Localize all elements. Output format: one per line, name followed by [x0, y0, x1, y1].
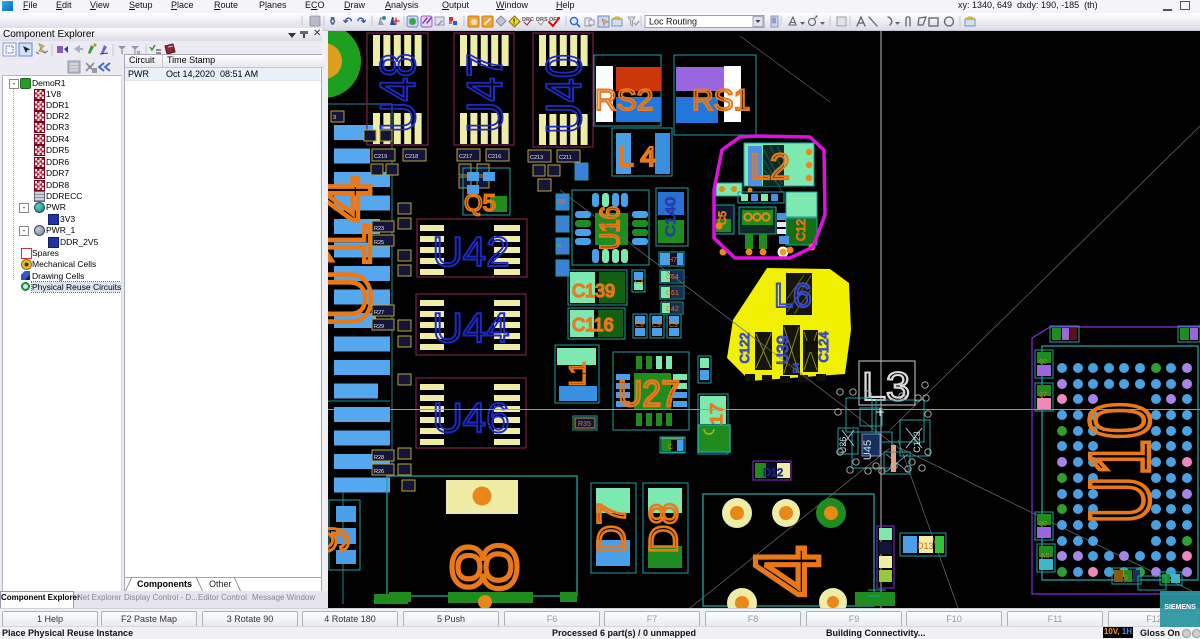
svg-text:C116: C116: [572, 315, 614, 335]
svg-text:D8: D8: [642, 502, 686, 553]
svg-text:R23: R23: [374, 226, 384, 232]
svg-text:4: 4: [737, 545, 839, 596]
svg-text:27: 27: [1039, 392, 1047, 399]
svg-text:9: 9: [328, 526, 359, 554]
svg-text:C219: C219: [374, 154, 387, 160]
svg-text:R35: R35: [578, 421, 591, 428]
svg-text:8: 8: [434, 541, 536, 592]
svg-text:D13: D13: [917, 541, 934, 551]
svg-text:U46: U46: [432, 394, 509, 441]
svg-text:8: 8: [1063, 333, 1067, 340]
svg-text:↶: ↶: [342, 16, 353, 28]
svg-text:C124: C124: [816, 331, 831, 362]
svg-text:R25: R25: [374, 240, 384, 246]
svg-text:C61: C61: [666, 290, 679, 297]
svg-text:RS2: RS2: [595, 84, 653, 117]
svg-text:U27: U27: [618, 373, 680, 414]
svg-text:C216: C216: [488, 154, 501, 160]
svg-text:C218: C218: [405, 154, 418, 160]
svg-text:R6: R6: [557, 199, 566, 206]
svg-text:U40: U40: [536, 54, 592, 134]
svg-text:R28: R28: [374, 455, 384, 461]
svg-text:C217: C217: [459, 154, 472, 160]
svg-text:K0: K0: [1041, 553, 1050, 560]
svg-text:C9: C9: [652, 322, 661, 329]
svg-text:Loc Routing: Loc Routing: [649, 17, 697, 27]
svg-text:L3: L3: [862, 365, 910, 409]
svg-text:C140: C140: [662, 197, 678, 237]
svg-text:80: 80: [1039, 359, 1047, 366]
svg-text:C: C: [668, 444, 673, 451]
svg-text:U47: U47: [457, 53, 513, 133]
svg-text:D7: D7: [590, 502, 634, 553]
svg-text:H7: H7: [668, 257, 677, 264]
svg-text:K: K: [557, 243, 562, 250]
svg-text:C213: C213: [530, 155, 543, 161]
svg-text:⚱: ⚱: [328, 16, 337, 28]
svg-text:C9: C9: [669, 322, 678, 329]
svg-text:C9: C9: [635, 322, 644, 329]
svg-text:↷: ↷: [357, 16, 367, 28]
svg-text:U44: U44: [432, 304, 509, 351]
svg-text:R26: R26: [374, 469, 384, 475]
svg-text:U10: U10: [1073, 402, 1168, 524]
svg-text:R27: R27: [374, 310, 384, 316]
svg-text:!: !: [513, 18, 516, 27]
svg-text:80: 80: [1039, 521, 1047, 528]
svg-text:L6: L6: [774, 277, 812, 315]
svg-text:C139: C139: [572, 281, 615, 301]
svg-text:L1: L1: [565, 362, 590, 386]
svg-text:3: 3: [333, 115, 336, 121]
svg-text:R29: R29: [374, 324, 384, 330]
svg-text:L 4: L 4: [618, 141, 656, 172]
svg-text:C12: C12: [794, 219, 808, 241]
svg-text:U48: U48: [370, 53, 426, 133]
svg-text:U26: U26: [838, 437, 848, 454]
svg-text:C4: C4: [635, 279, 644, 286]
svg-text:C123: C123: [912, 431, 922, 453]
svg-text:C122: C122: [737, 332, 752, 363]
svg-text:RS1: RS1: [692, 84, 750, 117]
svg-text:C42: C42: [666, 306, 679, 313]
svg-text:C211: C211: [559, 155, 572, 161]
svg-text:Q5: Q5: [464, 190, 496, 217]
svg-text:C64: C64: [666, 274, 679, 281]
svg-text:U42: U42: [432, 228, 509, 275]
svg-text:U45: U45: [862, 440, 874, 460]
svg-text:L2: L2: [750, 146, 790, 187]
svg-text:8: 8: [1124, 575, 1128, 582]
svg-text:D12: D12: [763, 467, 783, 479]
